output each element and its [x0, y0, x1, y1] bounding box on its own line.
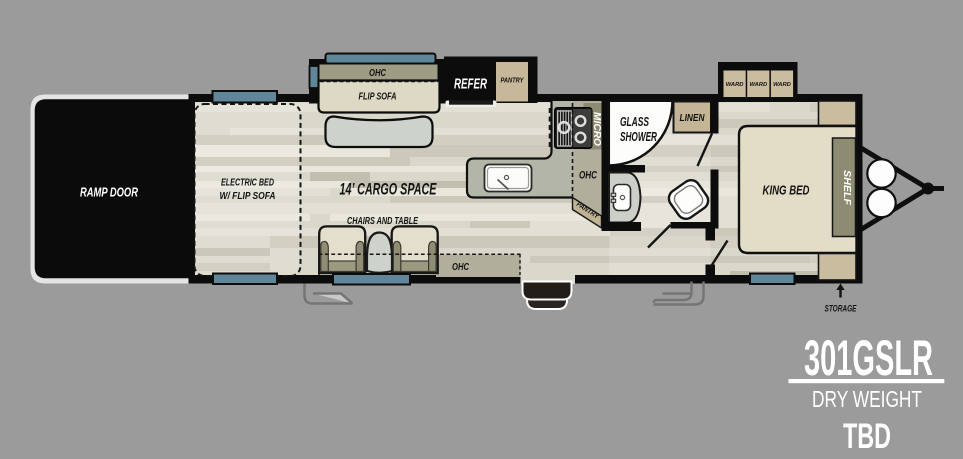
svg-text:REFER: REFER — [454, 77, 487, 93]
svg-text:WARD: WARD — [749, 82, 768, 88]
svg-text:STORAGE: STORAGE — [825, 304, 858, 314]
svg-text:FLIP SOFA: FLIP SOFA — [359, 91, 397, 103]
svg-text:SHELF: SHELF — [841, 170, 852, 206]
svg-text:MICRO: MICRO — [591, 112, 602, 146]
svg-text:WARD: WARD — [726, 82, 745, 88]
svg-text:CHAIRS AND TABLE: CHAIRS AND TABLE — [347, 215, 419, 227]
svg-text:TBD: TBD — [843, 417, 891, 456]
svg-text:KING BED: KING BED — [763, 183, 810, 198]
svg-text:OHC: OHC — [579, 170, 598, 182]
svg-text:WARD: WARD — [773, 82, 792, 88]
svg-text:OHC: OHC — [369, 68, 387, 79]
svg-text:OHC: OHC — [452, 262, 470, 273]
svg-text:SHOWER: SHOWER — [620, 129, 657, 144]
svg-text:LINEN: LINEN — [680, 112, 705, 124]
svg-text:ELECTRIC BED: ELECTRIC BED — [221, 177, 274, 189]
svg-text:W/ FLIP SOFA: W/ FLIP SOFA — [220, 190, 276, 202]
svg-text:RAMP DOOR: RAMP DOOR — [80, 186, 138, 200]
svg-text:GLASS: GLASS — [620, 114, 649, 129]
svg-text:14’ CARGO SPACE: 14’ CARGO SPACE — [340, 181, 438, 199]
svg-text:PANTRY: PANTRY — [501, 78, 525, 85]
svg-text:DRY WEIGHT: DRY WEIGHT — [812, 386, 922, 412]
svg-text:301GSLR: 301GSLR — [804, 329, 933, 386]
